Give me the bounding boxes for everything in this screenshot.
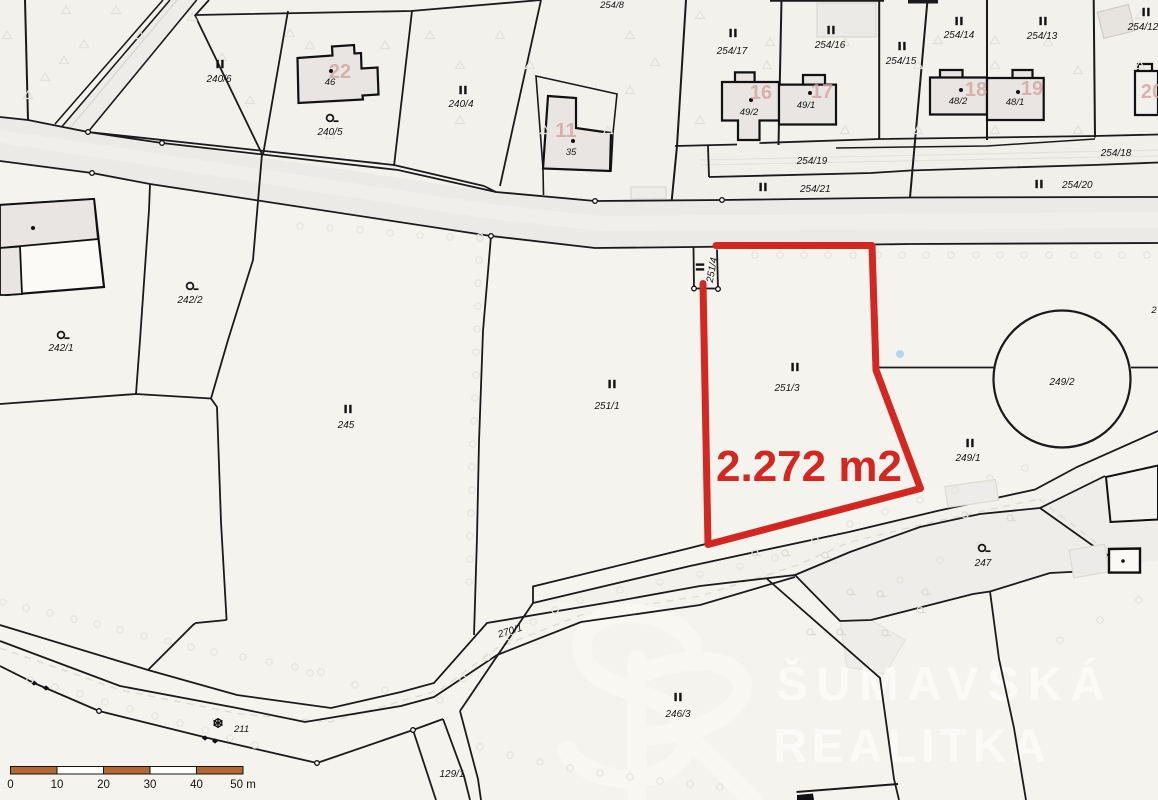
svg-text:35: 35 <box>566 147 577 158</box>
svg-text:16: 16 <box>750 82 772 104</box>
svg-text:254/15: 254/15 <box>885 56 917 67</box>
svg-text:251/1: 251/1 <box>593 401 619 412</box>
svg-text:2.272 m2: 2.272 m2 <box>716 442 902 491</box>
svg-text:254/19: 254/19 <box>796 156 828 167</box>
svg-text:249/1: 249/1 <box>954 453 980 464</box>
svg-text:19: 19 <box>1021 78 1043 100</box>
svg-text:240/6: 240/6 <box>205 74 231 85</box>
svg-text:254/17: 254/17 <box>716 46 748 57</box>
svg-text:10: 10 <box>51 779 64 791</box>
svg-text:2: 2 <box>1150 305 1157 316</box>
svg-text:254/8: 254/8 <box>599 0 624 11</box>
svg-text:22: 22 <box>329 61 351 83</box>
svg-text:251/3: 251/3 <box>773 383 799 394</box>
svg-text:REALITKA: REALITKA <box>773 719 1051 772</box>
svg-text:254/12: 254/12 <box>1127 22 1158 33</box>
svg-text:249/2: 249/2 <box>1048 377 1074 388</box>
svg-text:18: 18 <box>965 79 987 101</box>
svg-text:242/2: 242/2 <box>176 295 202 306</box>
svg-text:240/4: 240/4 <box>447 99 473 110</box>
svg-text:49/2: 49/2 <box>740 107 759 118</box>
svg-text:246/3: 246/3 <box>664 709 690 720</box>
svg-text:247: 247 <box>974 558 992 569</box>
svg-text:242/1: 242/1 <box>47 343 73 354</box>
svg-text:254/14: 254/14 <box>943 30 975 41</box>
svg-text:254/16: 254/16 <box>814 40 846 51</box>
svg-text:50 m: 50 m <box>230 779 256 791</box>
svg-text:30: 30 <box>144 779 157 791</box>
svg-text:ŠUMAVSKÁ: ŠUMAVSKÁ <box>776 657 1113 710</box>
svg-text:240/5: 240/5 <box>316 127 342 138</box>
svg-text:0: 0 <box>7 779 13 791</box>
svg-text:11: 11 <box>555 120 576 142</box>
svg-text:254/20: 254/20 <box>1061 180 1093 191</box>
svg-text:254/18: 254/18 <box>1100 148 1132 159</box>
svg-text:254/13: 254/13 <box>1026 31 1058 42</box>
svg-text:129/1: 129/1 <box>439 769 464 780</box>
svg-text:17: 17 <box>811 81 833 103</box>
svg-text:211: 211 <box>233 724 249 735</box>
svg-text:40: 40 <box>190 779 203 791</box>
svg-text:20: 20 <box>1141 81 1158 103</box>
svg-text:254/21: 254/21 <box>799 184 831 195</box>
svg-text:20: 20 <box>97 779 110 791</box>
svg-text:245: 245 <box>337 420 355 431</box>
